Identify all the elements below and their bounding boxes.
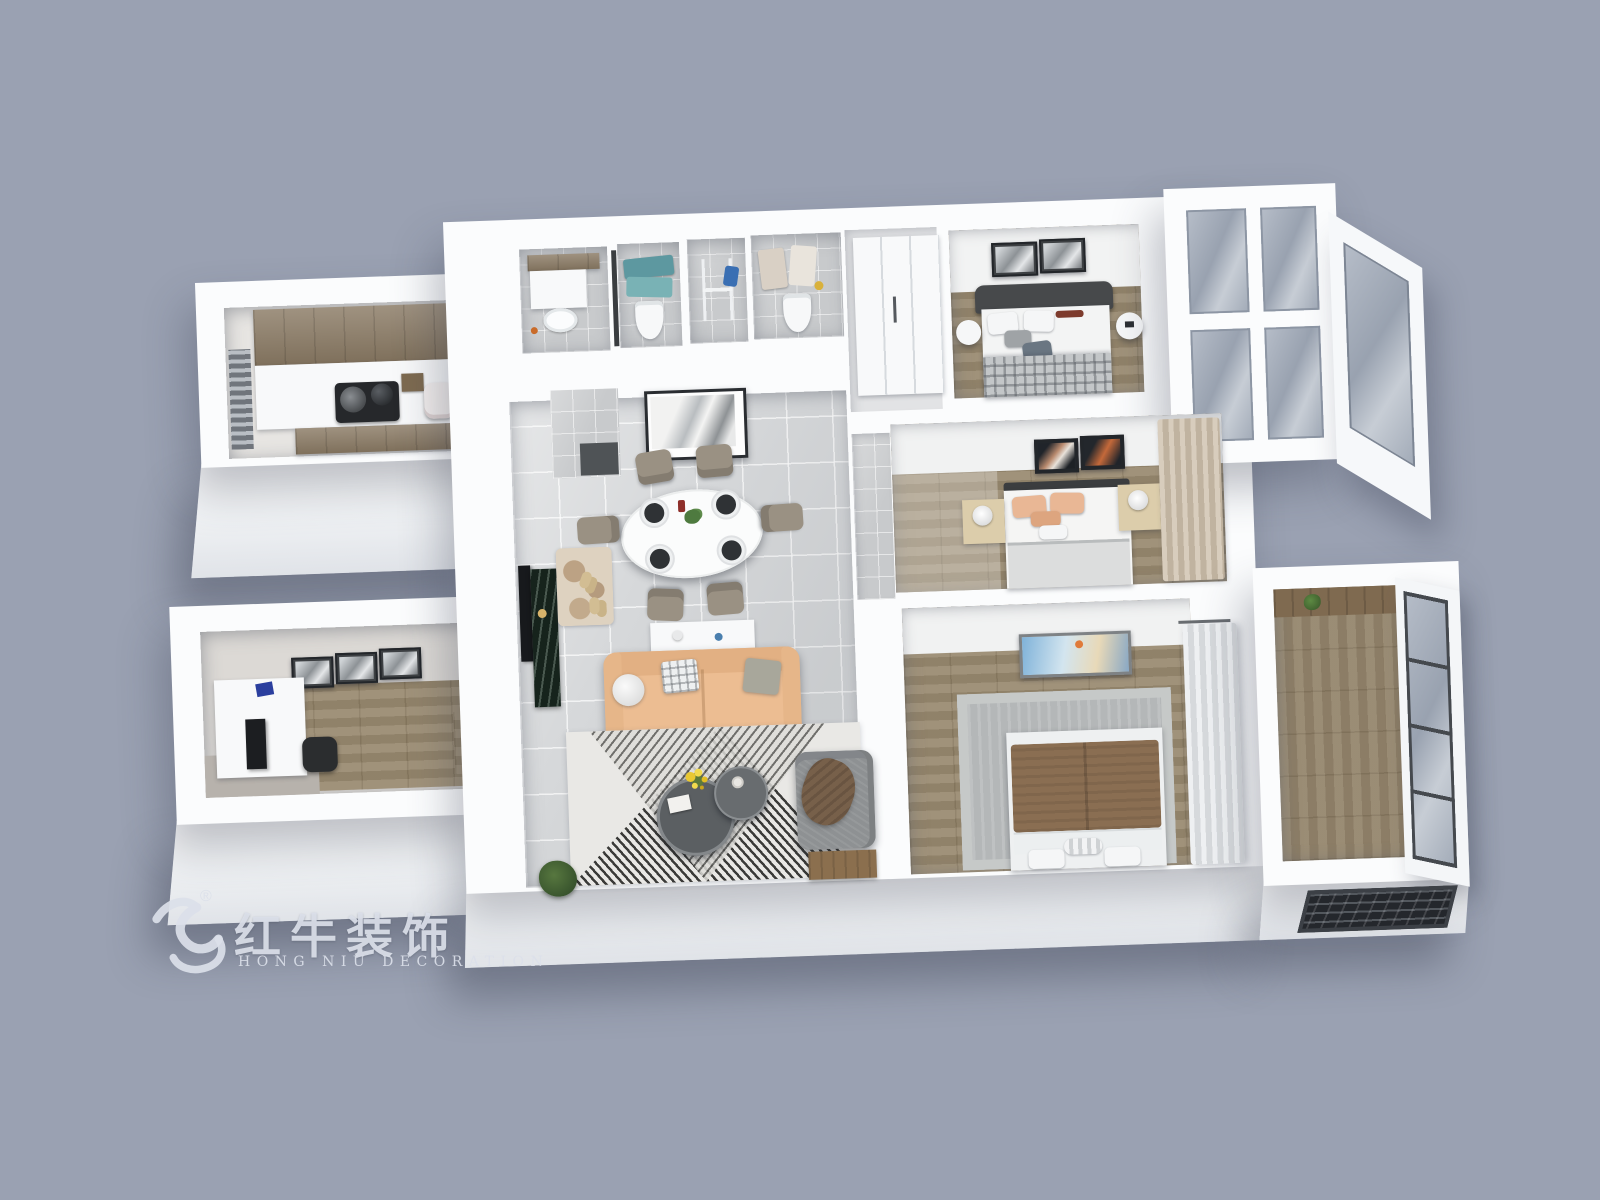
- balcony-north-pane-1: [1186, 208, 1250, 314]
- balcony-north-pane-4: [1264, 326, 1324, 440]
- teal-towel-2: [626, 277, 672, 298]
- dining-chair-left: [576, 515, 620, 545]
- hanging-towel-white: [788, 245, 817, 287]
- kitchen-window: [228, 349, 253, 450]
- bull-logo-icon: [148, 894, 232, 986]
- bedroom-north-picture-2: [1039, 238, 1086, 274]
- rust-accent-pillow: [1055, 310, 1083, 318]
- apartment-floorplan: [0, 0, 1600, 1200]
- dining-chair-right: [760, 503, 804, 533]
- dining-chair-top-1: [634, 448, 675, 486]
- sofa-check-cushion: [660, 658, 699, 694]
- center-hallway-floor: [852, 433, 896, 600]
- bed-middle-duvet: [1008, 538, 1132, 588]
- dining-wall-art-content: [650, 394, 736, 449]
- bedroom-middle-picture-1: [1034, 438, 1079, 474]
- desk-monitor: [245, 719, 267, 770]
- slippers-pair-3: [589, 597, 600, 614]
- registered-icon: ®: [200, 888, 212, 906]
- corridor-wardrobe: [853, 235, 944, 396]
- master-pillow-1: [1028, 849, 1065, 869]
- dining-chair-top-2: [695, 443, 734, 478]
- hanging-towel-beige: [757, 247, 788, 290]
- dining-chair-bottom-1: [647, 588, 684, 621]
- dining-chair-bottom-2: [706, 581, 745, 616]
- wood-bench: [808, 850, 877, 880]
- vanity-mirror-cabinet: [527, 253, 600, 272]
- render-canvas: ® 红牛装饰 HONG NIU DECORATION: [0, 0, 1600, 1200]
- bedside-phone: [1125, 321, 1134, 327]
- sofa-green-cushion: [742, 658, 781, 696]
- white-lumbar-pillow: [1039, 525, 1067, 540]
- blue-laundry-item: [723, 265, 740, 287]
- office-chair: [302, 736, 338, 772]
- bedroom-north-picture-1: [991, 242, 1038, 278]
- balcony-north-pane-2: [1260, 206, 1320, 312]
- master-curtains: [1182, 623, 1244, 865]
- bed-north-pillow-2: [1024, 310, 1054, 332]
- spice-rack: [401, 373, 424, 392]
- entry-doormat: [580, 442, 619, 475]
- study-picture-3: [379, 647, 422, 679]
- vanity-cabinet: [530, 269, 587, 309]
- kitchen-upper-cabinets: [253, 303, 451, 366]
- bedroom-middle-curtains: [1157, 417, 1225, 581]
- master-bolster: [1064, 838, 1103, 855]
- master-pillow-2: [1104, 846, 1141, 866]
- plaid-blanket: [983, 353, 1112, 397]
- bedroom-middle-picture-2: [1080, 435, 1125, 471]
- master-duvet-brown: [1011, 740, 1162, 833]
- louver-front-window: [1297, 885, 1457, 933]
- kitchen-front-wall: [191, 454, 493, 579]
- study-picture-2: [335, 652, 378, 684]
- balloon-painting: [1019, 631, 1132, 679]
- table-wine-bottle: [678, 500, 685, 512]
- brand-name-en: HONG NIU DECORATION: [238, 954, 549, 970]
- sofa-round-pillow: [612, 674, 645, 707]
